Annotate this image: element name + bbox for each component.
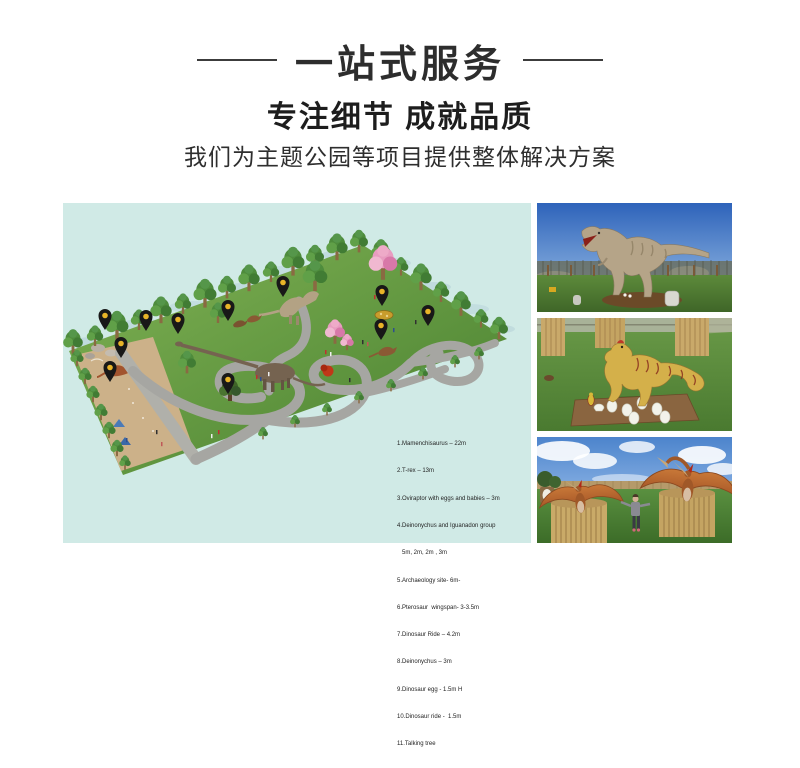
photo-pterosaurs — [537, 437, 732, 543]
legend-line: 9.Dinosaur egg - 1.5m H — [397, 686, 529, 695]
small-stone — [573, 295, 581, 305]
photo-trex — [537, 203, 732, 312]
oviraptor-nest-figure — [375, 311, 393, 320]
photo-oviraptor-eggs — [537, 318, 732, 431]
legend-line: 5.Archaeology site- 6m- — [397, 577, 529, 586]
legend-line: 7.Dinosaur Ride – 4.2m — [397, 631, 529, 640]
legend-line: 2.T-rex – 13m — [397, 467, 529, 476]
legend-line: 4.Deinonychus and Iguanadon group — [397, 522, 529, 531]
legend-line: 6.Pterosaur wingspan- 3-3.5m — [397, 604, 529, 613]
legend-line: 1.Mamenchisaurus – 22m — [397, 440, 529, 449]
banner: 一站式服务 — [0, 36, 800, 84]
title-divider-left — [197, 59, 277, 61]
legend-line: 8.Deinonychus – 3m — [397, 658, 529, 667]
photo-column — [537, 203, 732, 543]
headline: 专注细节 成就品质 — [0, 92, 800, 136]
legend-line: 10.Dinosaur ride - 1.5m — [397, 713, 529, 722]
legend-line: 5m, 2m, 2m , 3m — [397, 549, 529, 558]
legend-line: 3.Oviraptor with eggs and babies – 3m — [397, 495, 529, 504]
standing-stone — [665, 291, 679, 306]
subtitle: 我们为主题公园等项目提供整体解决方案 — [0, 138, 800, 172]
banner-title: 一站式服务 — [295, 33, 505, 88]
attraction-legend: 1.Mamenchisaurus – 22m 2.T-rex – 13m 3.O… — [397, 422, 529, 768]
small-sculpture — [544, 375, 554, 381]
legend-line: 11.Talking tree — [397, 740, 529, 749]
park-plan-image: 1.Mamenchisaurus – 22m 2.T-rex – 13m 3.O… — [63, 203, 531, 543]
yellow-digger — [549, 287, 556, 292]
title-divider-right — [523, 59, 603, 61]
